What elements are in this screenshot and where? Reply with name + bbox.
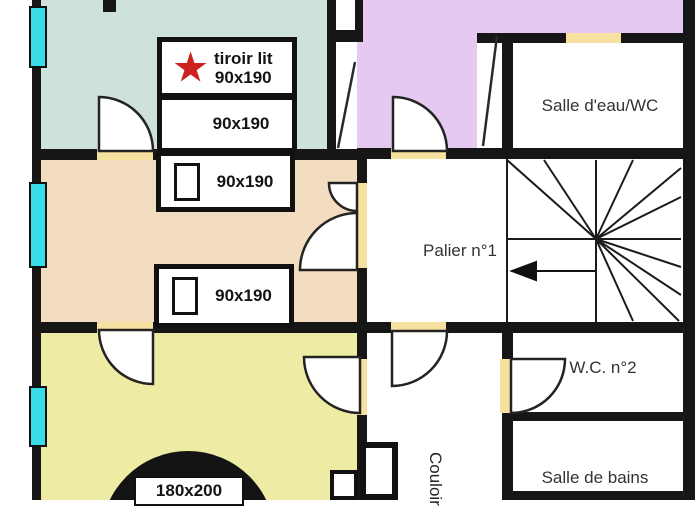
star-icon: ★: [174, 49, 207, 86]
door-slot-purple-right: [477, 43, 502, 148]
label-salle-eau-wc: Salle d'eau/WC: [515, 96, 685, 116]
bed-tiroir-label: tiroir lit 90x190: [214, 49, 273, 87]
label-wc2: W.C. n°2: [540, 358, 666, 378]
door-opening-salle-eau: [566, 33, 621, 43]
wall-salle-eau-left: [502, 40, 513, 152]
wall-corridor-stair-bottom: [446, 322, 695, 333]
door-opening-peach-double: [355, 183, 367, 268]
label-salle-de-bains: Salle de bains: [520, 468, 670, 488]
door-opening-teal: [97, 149, 153, 160]
wall-outer-right: [683, 0, 695, 500]
room-bedroom-yellow: [36, 329, 361, 500]
stair-direction-arrow: [512, 262, 595, 280]
bed-3-label: 90x190: [200, 172, 290, 192]
closet-corridor: [360, 442, 398, 500]
floor-plan-page: { "plan": { "room_labels": { "salle_eau_…: [0, 0, 700, 500]
wall-slot-stub-cross: [327, 30, 363, 42]
wall-wc-left-b: [502, 413, 513, 500]
window-bottom-left: [29, 386, 47, 447]
door-leaf-diagonal-left-slot: [338, 62, 355, 148]
bed-4-label: 90x190: [198, 286, 289, 306]
wall-bottom-right: [502, 491, 695, 500]
pillow-icon: [174, 163, 200, 201]
door-swing-arc-corridor: [392, 331, 447, 386]
window-middle-left: [29, 182, 47, 268]
wall-teal-peach-a: [32, 149, 97, 160]
wall-top-stub: [103, 0, 116, 12]
door-opening-yellow-room: [355, 359, 367, 415]
wall-peach-yellow-a: [32, 322, 97, 333]
wall-wc-sdb: [505, 412, 695, 421]
wall-peach-palier-a: [357, 149, 367, 183]
wall-salle-eau-top-b: [621, 33, 695, 43]
wall-teal-right: [327, 0, 336, 160]
wall-wc-left-a: [502, 326, 513, 359]
bed-2: 90x190: [157, 95, 297, 153]
pillow-icon: [172, 277, 198, 315]
door-opening-peach-yellow: [97, 322, 153, 333]
wall-peach-palier-b: [357, 268, 367, 333]
wall-purple-bottom-b: [446, 148, 695, 159]
door-opening-corridor: [391, 322, 446, 333]
door-opening-wc2: [500, 359, 513, 413]
bed-2-label: 90x190: [162, 114, 292, 134]
bed-4: 90x190: [154, 264, 294, 328]
staircase-treads: [507, 159, 681, 322]
round-bed-label: 180x200: [134, 476, 244, 506]
window-top-left: [29, 6, 47, 68]
wall-yellow-corridor-a: [357, 333, 367, 359]
bed-tiroir-lit: ★ tiroir lit 90x190: [157, 37, 297, 98]
fixture-yellow-room: [330, 470, 358, 500]
label-palier: Palier n°1: [400, 241, 520, 261]
door-opening-purple: [391, 148, 446, 159]
wall-salle-eau-top-a: [477, 33, 566, 43]
bed-3: 90x190: [156, 151, 295, 212]
